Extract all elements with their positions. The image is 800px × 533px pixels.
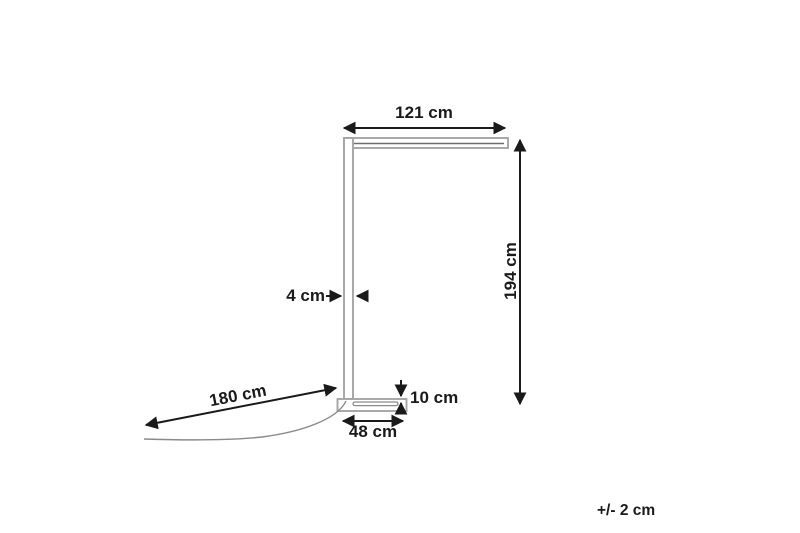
total-height-label: 194 cm <box>502 196 520 346</box>
pole-depth-label: 4 cm <box>245 287 325 305</box>
dimension-diagram: 121 cm 194 cm 4 cm 180 cm 10 cm 48 cm +/… <box>0 0 800 533</box>
lamp-drawing <box>0 0 800 533</box>
arm-width-label: 121 cm <box>354 104 494 122</box>
lamp-pole <box>344 138 353 399</box>
lamp-base-slot <box>353 402 398 406</box>
dimension-arrows <box>146 128 520 425</box>
base-height-label: 10 cm <box>410 389 458 407</box>
tolerance-note: +/- 2 cm <box>597 502 655 520</box>
base-width-label: 48 cm <box>333 423 413 441</box>
